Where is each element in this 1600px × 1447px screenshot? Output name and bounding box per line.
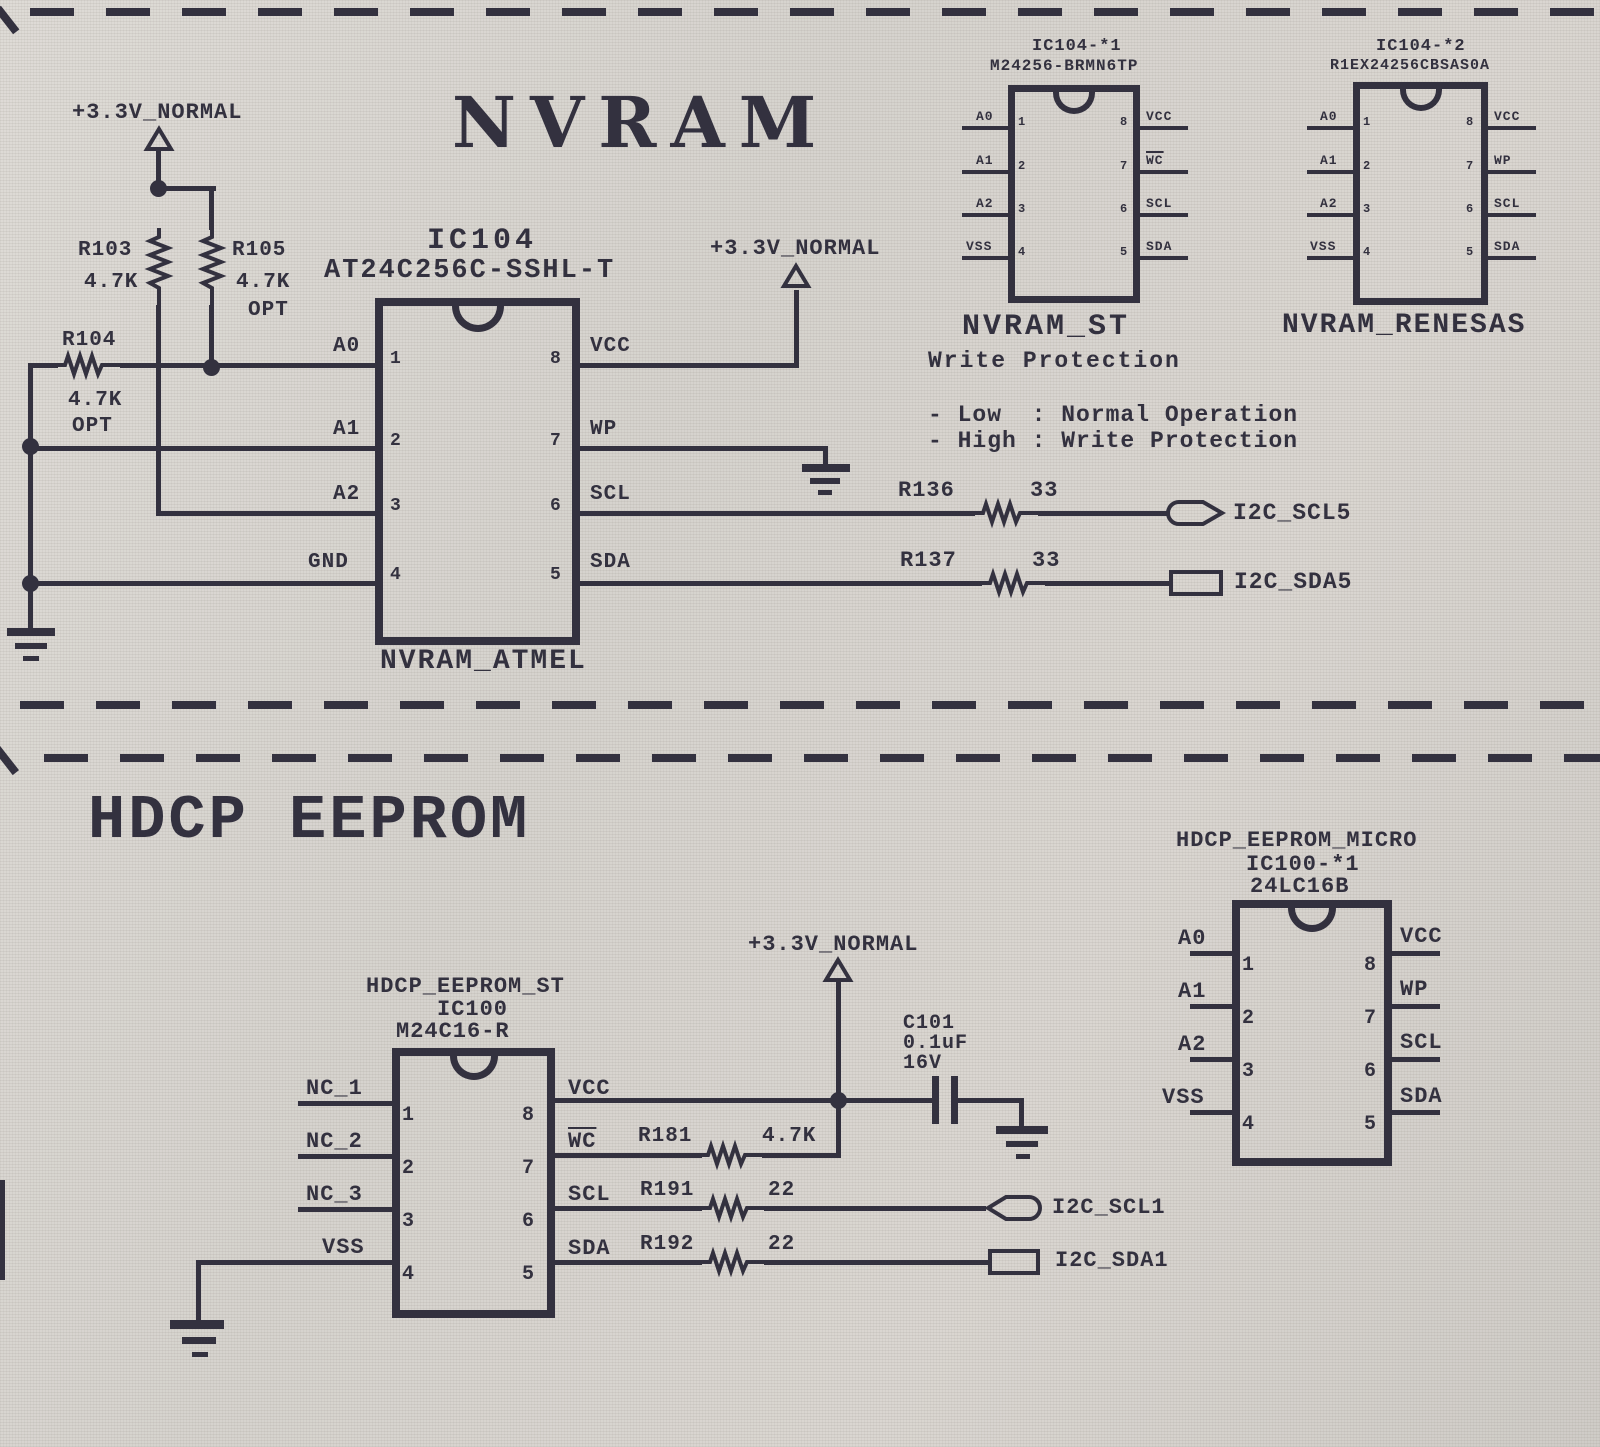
wire <box>1307 213 1353 217</box>
wire <box>1140 256 1188 260</box>
resistor-ref: R104 <box>62 330 116 351</box>
resistor-value: 4.7K <box>762 1126 816 1147</box>
wire <box>1392 1004 1440 1009</box>
wire <box>1019 1098 1024 1128</box>
wire <box>1392 1057 1440 1062</box>
wire <box>764 1260 988 1265</box>
pin-label: A1 <box>976 154 994 167</box>
pin-number: 6 <box>1364 1062 1377 1082</box>
pin-number: 1 <box>390 350 402 368</box>
pin-label: NC_3 <box>306 1184 363 1206</box>
resistor-value: 4.7K <box>236 272 290 293</box>
pin-number: 2 <box>1363 160 1371 172</box>
ground-symbol <box>1016 1154 1030 1159</box>
pin-number: 4 <box>1242 1115 1255 1135</box>
pin-label: VCC <box>590 336 631 357</box>
pin-label: VCC <box>1146 110 1172 123</box>
wire <box>962 256 1008 260</box>
net-label-3v3-hdcp: +3.3V_NORMAL <box>748 934 918 956</box>
wire <box>1307 170 1353 174</box>
wire <box>298 1207 392 1212</box>
wire <box>1038 511 1168 516</box>
pin-number: 1 <box>1018 116 1026 128</box>
pin-number: 1 <box>1363 116 1371 128</box>
dashed-separator-mid-2 <box>44 754 1600 762</box>
resistor-ref: R191 <box>640 1180 694 1201</box>
resistor-value: 22 <box>768 1234 795 1255</box>
wire <box>572 581 982 586</box>
pin-number: 7 <box>1466 160 1474 172</box>
wire <box>1307 126 1353 130</box>
pin-label: A1 <box>1320 154 1338 167</box>
wire <box>1488 213 1536 217</box>
ic-ref: IC104-*1 <box>1032 38 1122 55</box>
wire <box>1307 256 1353 260</box>
pin-label: VSS <box>966 240 992 253</box>
net-label: I2C_SCL1 <box>1052 1197 1166 1219</box>
resistor-ref: R137 <box>900 550 957 572</box>
wire <box>962 213 1008 217</box>
pin-number: 7 <box>1364 1009 1377 1029</box>
wire <box>962 170 1008 174</box>
wire <box>555 1206 702 1211</box>
ground-symbol <box>818 490 832 495</box>
note-line: - Low : Normal Operation <box>928 404 1298 427</box>
pin-label: SDA <box>1146 240 1172 253</box>
pin-number: 4 <box>1363 246 1371 258</box>
ground-symbol <box>15 643 47 649</box>
wire <box>1392 1110 1440 1115</box>
pin-number: 5 <box>1364 1115 1377 1135</box>
wire <box>962 126 1008 130</box>
ic-notch <box>1288 908 1336 932</box>
wire <box>555 1260 702 1265</box>
wire <box>1190 1057 1232 1062</box>
wire <box>209 305 214 367</box>
resistor-note: OPT <box>72 416 113 437</box>
ic-caption: NVRAM_RENESAS <box>1282 312 1526 340</box>
ic-notch <box>450 1056 498 1080</box>
wire <box>958 1098 1024 1103</box>
scan-edge-mark <box>0 6 19 35</box>
net-label-3v3-vcc: +3.3V_NORMAL <box>710 238 880 260</box>
wire <box>1045 581 1170 586</box>
pin-label: SDA <box>1494 240 1520 253</box>
pin-label: SCL <box>1494 197 1520 210</box>
pin-label: A0 <box>976 110 994 123</box>
wire <box>1488 256 1536 260</box>
ic-notch <box>452 306 504 332</box>
section-title-hdcp: HDCP EEPROM <box>88 790 530 852</box>
ground-symbol <box>810 478 840 484</box>
resistor-ref: R105 <box>232 240 286 261</box>
resistor-value: 4.7K <box>68 390 122 411</box>
pin-label: A2 <box>333 484 360 505</box>
wire <box>298 1101 392 1106</box>
wire <box>196 1260 201 1322</box>
wire <box>1488 126 1536 130</box>
ic-caption: NVRAM_ATMEL <box>380 648 587 676</box>
ic-part: R1EX24256CBSAS0A <box>1330 58 1490 73</box>
resistor-ref: R181 <box>638 1126 692 1147</box>
pin-number: 6 <box>550 497 562 515</box>
ic-caption: NVRAM_ST <box>962 312 1130 342</box>
wire <box>1140 126 1188 130</box>
ground-symbol <box>182 1337 216 1344</box>
ic-name: HDCP_EEPROM_ST <box>366 976 565 998</box>
pin-number: 3 <box>1242 1062 1255 1082</box>
wire <box>156 305 161 513</box>
pin-label: SCL <box>590 484 631 505</box>
resistor-r103 <box>147 228 171 306</box>
wire <box>836 1100 841 1158</box>
pin-label: A2 <box>1320 197 1338 210</box>
offpage-tag-scl5 <box>1165 499 1225 527</box>
ic-name: HDCP_EEPROM_MICRO <box>1176 830 1417 852</box>
wire <box>156 186 216 191</box>
wire <box>572 511 975 516</box>
wire <box>572 446 828 451</box>
ground-symbol <box>23 656 39 661</box>
pin-label: A0 <box>333 336 360 357</box>
capacitor-value: 0.1uF <box>903 1034 968 1054</box>
wire <box>572 363 799 368</box>
wire <box>1190 951 1232 956</box>
power-symbol <box>145 127 173 151</box>
wire <box>1190 1110 1232 1115</box>
pin-number: 8 <box>550 350 562 368</box>
ground-symbol <box>802 464 850 472</box>
resistor-ref: R192 <box>640 1234 694 1255</box>
pin-label: SDA <box>568 1238 611 1260</box>
dashed-separator-top <box>30 8 1600 16</box>
pin-number: 5 <box>550 566 562 584</box>
resistor-r181 <box>700 1143 764 1167</box>
schematic-sheet: NVRAM +3.3V_NORMAL R103 4.7K R105 4.7K O… <box>0 0 1600 1447</box>
resistor-r137 <box>982 571 1046 595</box>
pin-number: 3 <box>1018 203 1026 215</box>
pin-number: 3 <box>402 1212 415 1232</box>
net-label-3v3-left: +3.3V_NORMAL <box>72 102 242 124</box>
wire <box>120 363 380 368</box>
wire <box>764 1206 986 1211</box>
pin-number: 1 <box>1242 956 1255 976</box>
pin-number: 7 <box>522 1159 535 1179</box>
ic-ref: IC100 <box>437 999 508 1021</box>
pin-label: A2 <box>976 197 994 210</box>
net-label: I2C_SCL5 <box>1233 502 1351 525</box>
pin-number: 5 <box>1466 246 1474 258</box>
pin-number: 7 <box>1120 160 1128 172</box>
wire <box>762 1153 841 1158</box>
ground-symbol <box>170 1320 224 1329</box>
wire <box>209 186 214 230</box>
wire <box>1140 170 1188 174</box>
wire <box>1140 213 1188 217</box>
ground-symbol <box>1006 1141 1038 1147</box>
ic-notch <box>1400 89 1442 111</box>
net-label: I2C_SDA1 <box>1055 1250 1169 1272</box>
pin-number: 5 <box>1120 246 1128 258</box>
ground-symbol <box>7 628 55 636</box>
pin-number: 6 <box>522 1212 535 1232</box>
resistor-r191 <box>702 1196 766 1220</box>
wire <box>196 1260 392 1265</box>
capacitor-plate <box>932 1076 939 1124</box>
capacitor-voltage: 16V <box>903 1054 942 1074</box>
wire <box>156 511 380 516</box>
pin-label: VCC <box>568 1078 611 1100</box>
ic-part: M24256-BRMN6TP <box>990 58 1138 74</box>
wire <box>794 290 799 366</box>
pin-label: A1 <box>1178 981 1206 1003</box>
pin-label: A1 <box>333 419 360 440</box>
pin-number: 2 <box>1242 1009 1255 1029</box>
pin-number: 4 <box>390 566 402 584</box>
wire <box>555 1153 702 1158</box>
resistor-r104 <box>57 353 121 377</box>
resistor-value: 22 <box>768 1180 795 1201</box>
pin-label: SDA <box>590 552 631 573</box>
pin-label: A2 <box>1178 1034 1206 1056</box>
ic-part: 24LC16B <box>1250 876 1349 898</box>
wire <box>1190 1004 1232 1009</box>
pin-number: 8 <box>522 1106 535 1126</box>
offpage-tag-sda5 <box>1168 569 1224 597</box>
ic-ref: IC100-*1 <box>1246 854 1360 876</box>
pin-label: WP <box>590 419 617 440</box>
offpage-tag-scl1 <box>985 1194 1043 1222</box>
ic-part: AT24C256C-SSHL-T <box>324 258 615 285</box>
pin-label: VSS <box>1310 240 1336 253</box>
pin-label: VCC <box>1494 110 1520 123</box>
note-line: - High : Write Protection <box>928 430 1298 453</box>
resistor-r192 <box>702 1250 766 1274</box>
pin-label: WP <box>1400 979 1428 1001</box>
ic-ref: IC104-*2 <box>1376 38 1466 55</box>
section-title-nvram: NVRAM <box>452 88 830 158</box>
pin-label: SCL <box>1146 197 1172 210</box>
pin-number: 5 <box>522 1265 535 1285</box>
wire <box>836 982 841 1102</box>
pin-label: NC_2 <box>306 1131 363 1153</box>
pin-label: VSS <box>1162 1087 1205 1109</box>
ic-part: M24C16-R <box>396 1021 510 1043</box>
pin-label: SCL <box>1400 1032 1443 1054</box>
offpage-tag-sda1 <box>987 1248 1041 1276</box>
pin-label: VCC <box>1400 926 1443 948</box>
resistor-r136 <box>975 501 1039 525</box>
pin-label: SDA <box>1400 1086 1443 1108</box>
pin-label: WP <box>1494 154 1512 167</box>
ground-symbol <box>192 1352 208 1357</box>
capacitor-plate <box>951 1076 958 1124</box>
wire <box>1488 170 1536 174</box>
power-symbol <box>824 958 852 982</box>
pin-label: NC_1 <box>306 1078 363 1100</box>
ground-symbol <box>996 1126 1048 1134</box>
wire <box>555 1098 934 1103</box>
resistor-ref: R103 <box>78 240 132 261</box>
pin-number: 8 <box>1466 116 1474 128</box>
pin-number: 6 <box>1120 203 1128 215</box>
resistor-ref: R136 <box>898 480 955 502</box>
pin-label: WC <box>1146 154 1164 167</box>
scan-edge-mark <box>0 745 19 775</box>
pin-label: A0 <box>1320 110 1338 123</box>
dashed-separator-mid-1 <box>20 701 1600 709</box>
note-heading: Write Protection <box>928 350 1181 373</box>
pin-number: 2 <box>402 1159 415 1179</box>
pin-label: WC <box>568 1131 596 1153</box>
ic-notch <box>1053 92 1095 114</box>
resistor-r105 <box>200 228 224 306</box>
wire <box>1392 951 1440 956</box>
power-symbol <box>782 264 810 288</box>
pin-number: 3 <box>1363 203 1371 215</box>
capacitor-ref: C101 <box>903 1014 955 1034</box>
pin-number: 1 <box>402 1106 415 1126</box>
pin-label: VSS <box>322 1237 365 1259</box>
pin-number: 4 <box>402 1265 415 1285</box>
pin-number: 8 <box>1120 116 1128 128</box>
wire <box>823 446 828 466</box>
resistor-value: 33 <box>1030 480 1058 502</box>
resistor-note: OPT <box>248 300 289 321</box>
pin-label: SCL <box>568 1184 611 1206</box>
pin-label: A0 <box>1178 928 1206 950</box>
scan-edge-mark <box>0 1180 5 1280</box>
wire <box>28 446 380 451</box>
pin-number: 3 <box>390 497 402 515</box>
pin-number: 4 <box>1018 246 1026 258</box>
pin-number: 7 <box>550 432 562 450</box>
pin-number: 2 <box>1018 160 1026 172</box>
pin-number: 8 <box>1364 956 1377 976</box>
resistor-value: 33 <box>1032 550 1060 572</box>
net-label: I2C_SDA5 <box>1234 571 1352 594</box>
resistor-value: 4.7K <box>84 272 138 293</box>
pin-number: 2 <box>390 432 402 450</box>
wire <box>28 581 380 586</box>
pin-number: 6 <box>1466 203 1474 215</box>
wire <box>298 1154 392 1159</box>
pin-label: GND <box>308 552 349 573</box>
ic-ref: IC104 <box>427 226 537 256</box>
